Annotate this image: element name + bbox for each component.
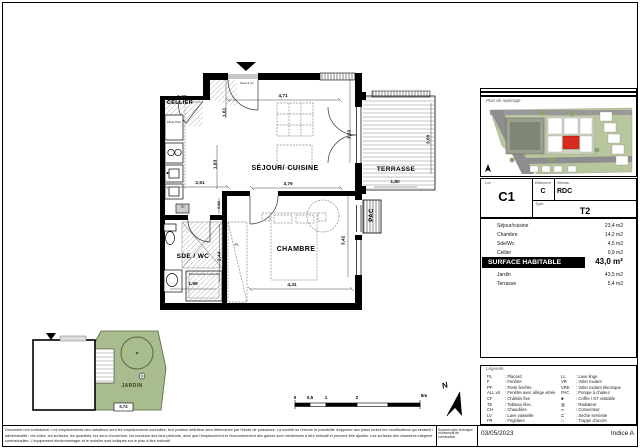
- north-arrow-icon: [447, 392, 462, 416]
- type-value: T2: [532, 207, 638, 216]
- footer-indice: Indice A: [560, 431, 634, 438]
- scale-tick-2: 2: [352, 396, 362, 401]
- legend-label: Frigidaire: [505, 419, 525, 423]
- legend-label: Lave linge: [576, 375, 597, 379]
- legend-label: Chaudière: [505, 408, 527, 412]
- room-label-pac: PAC: [369, 200, 375, 230]
- surface-row-area: 14,2 m2: [561, 233, 623, 238]
- site-plan-map: [482, 106, 635, 176]
- room-label-chambre: CHAMBRE: [268, 246, 324, 253]
- footer-note: Suivant notice technique et descriptif d…: [438, 429, 476, 439]
- footer-disclaimer-line3: contractuelles. L'équipement électroména…: [5, 439, 433, 443]
- legend-label: Sèche serviette: [576, 414, 607, 418]
- surface-row-name: Chambre: [497, 233, 518, 238]
- legend-label: Radiateur: [576, 403, 597, 407]
- dim-sde-h: 2,44: [219, 241, 224, 271]
- dim-chambre-w: 4,31: [280, 284, 304, 289]
- highlighted-unit: [563, 136, 579, 149]
- site-plan-title: Plan de repérage: [486, 99, 521, 104]
- legend-abbr: CF: [487, 397, 505, 401]
- legend-seche-serviette-icon: ⊏: [561, 414, 576, 418]
- legend-abbr: CH: [487, 408, 505, 412]
- scale-tick-1: 1: [321, 396, 331, 401]
- lot-table: Lot C1 Bâtiment C Niveau RDC Type T2: [480, 178, 637, 218]
- legend-abbr: PF: [487, 386, 505, 390]
- dim-terrasse-w: 1,80: [383, 181, 407, 186]
- room-label-cellier: CELLIER: [160, 101, 200, 107]
- scale-tick-05: 0,5: [303, 396, 317, 401]
- surface-habitable-label: SURFACE HABITABLE: [488, 260, 561, 267]
- legend-abbr: FR: [487, 419, 505, 423]
- footer-top-rule: [2, 425, 637, 426]
- room-label-sde-wc: SDE / WC: [168, 254, 218, 261]
- legend-abbr: LV: [487, 414, 505, 418]
- dim-cellier-w: 1,66: [170, 96, 194, 101]
- legend-label: Coffre / GT visitable: [576, 397, 615, 401]
- dim-sejour-window-h: 3,52: [349, 119, 354, 149]
- seuil-entree-label: Seuil 3 cm: [234, 82, 260, 85]
- site-plan-box: Plan de repérage: [480, 96, 637, 177]
- dim-chambre-h: 3,42: [343, 225, 348, 255]
- lot-value: C1: [481, 190, 532, 203]
- dim-couloir-h: 0,66: [217, 193, 221, 217]
- legend-abbr: PAC: [561, 391, 576, 395]
- legend-abbr: VR: [561, 380, 576, 384]
- pilote-pac-label: Pilote PAC: [164, 121, 184, 124]
- legend-label: Tableau élec.: [505, 403, 532, 407]
- legend-label: Fenêtre: [505, 380, 522, 384]
- legend-label: Volet roulant: [576, 380, 602, 384]
- ext-row-area: 5,4 m2: [561, 282, 623, 287]
- dim-entree-h: 1,61: [224, 97, 229, 127]
- dim-sejour-w: 3,76: [274, 183, 302, 188]
- scale-tick-5m: 5m: [416, 394, 432, 399]
- scale-bar: [295, 400, 420, 409]
- surface-row-name: Sde/Wc: [497, 242, 515, 247]
- niveau-label: Niveau: [557, 181, 569, 185]
- garden-mini-plan: [33, 331, 166, 411]
- dim-cuisine-h: 1,83: [215, 149, 220, 179]
- legend-label: Placard: [505, 375, 522, 379]
- surface-row-name: Séjour/cuisine: [497, 224, 528, 229]
- surface-row-area: 0,9 m2: [561, 251, 623, 256]
- footer-disclaimer-line2: administratifs : les côtes, les surfaces…: [5, 434, 433, 438]
- jardin-dim-label: 5,74: [114, 405, 133, 409]
- niveau-value: RDC: [557, 188, 587, 195]
- legend-left-column: PLPlacard FFenêtre PFPorte fenêtre ALL.v…: [487, 374, 559, 424]
- footer-date: 03/05/2023: [481, 431, 514, 438]
- legend-label: Porte fenêtre: [505, 386, 532, 390]
- doors: [179, 80, 356, 242]
- legend-label: Volet roulant électrique: [576, 386, 621, 390]
- scale-tick-0: 0: [290, 396, 300, 401]
- lot-label: Lot: [485, 181, 491, 185]
- legend-convecteur-icon: ═: [561, 408, 576, 412]
- type-label: Type: [535, 202, 544, 206]
- legend-coffre-icon: ■: [561, 397, 576, 401]
- legend-label: Lave vaisselle: [505, 414, 534, 418]
- pl-label: PL: [231, 243, 243, 247]
- legend-abbr: VRE: [561, 386, 576, 390]
- terrasse-deck: [358, 91, 435, 194]
- dim-terrasse-h: 3,00: [428, 124, 433, 154]
- dim-entree-w: 4,71: [271, 95, 295, 100]
- legend-abbr: LL: [561, 375, 576, 379]
- room-label-sejour: SÉJOUR/ CUISINE: [240, 165, 330, 172]
- legend-right-column: LLLave linge VRVolet roulant VREVolet ro…: [561, 374, 637, 424]
- legend-abbr: TE: [487, 403, 505, 407]
- legend-label: Convecteur: [576, 408, 600, 412]
- surface-habitable-bar: SURFACE HABITABLE: [482, 257, 585, 268]
- batiment-value: C: [532, 188, 554, 195]
- room-label-terrasse: TERRASSE: [370, 167, 422, 174]
- legend-abbr: ALL.vit: [487, 391, 505, 395]
- kitchen-fixtures: [165, 115, 189, 213]
- legend-trappe-icon: □: [561, 419, 576, 423]
- lot-table-divider-v2: [554, 179, 555, 200]
- ext-row-name: Terrasse: [497, 282, 516, 287]
- surface-row-area: 23,4 m2: [561, 224, 623, 229]
- legend-radiateur-icon: ▥: [561, 403, 576, 407]
- dim-sde-w: 1,99: [181, 283, 205, 288]
- footer-divider-1: [436, 425, 437, 446]
- legend-label: Châssis fixe: [505, 397, 530, 401]
- legend-label: Trappe d'accès: [576, 419, 607, 423]
- entrance-threshold: [228, 74, 258, 79]
- dim-cuisine-w: 2,61: [185, 182, 215, 187]
- top-window: [320, 73, 355, 80]
- footer-disclaimer-line1: Document non contractuel. Les emplacemen…: [5, 428, 433, 432]
- batiment-label: Bâtiment: [535, 181, 551, 185]
- legend-label: Fenêtre avec allège vitrée: [505, 391, 556, 395]
- legend-title: Légende: [486, 367, 504, 372]
- legend-abbr: PL: [487, 375, 505, 379]
- surface-row-area: 4,5 m2: [561, 242, 623, 247]
- legend-box: Légende PLPlacard FFenêtre PFPorte fenêt…: [480, 365, 637, 425]
- entrance-arrow-icon: [236, 62, 256, 71]
- legend-abbr: F: [487, 380, 505, 384]
- surface-row-name: Cellier: [497, 251, 511, 256]
- surface-habitable-value: 43,0 m²: [585, 258, 633, 266]
- seuil-douche-label: Seuil douche extra plat: [186, 273, 222, 276]
- ext-row-area: 43,5 m2: [561, 273, 623, 278]
- room-label-jardin: JARDIN: [114, 384, 150, 389]
- ext-row-name: Jardin: [497, 273, 511, 278]
- surfaces-box: Séjour/cuisine 23,4 m2 Chambre 14,2 m2 S…: [480, 218, 637, 358]
- legend-label: Pompe à chaleur: [576, 391, 610, 395]
- footer-divider-2: [477, 425, 478, 446]
- lot-table-divider-h1: [532, 200, 638, 201]
- plan-sheet: CELLIER SÉJOUR/ CUISINE CHAMBRE SDE / WC…: [0, 0, 640, 448]
- te-label: TE: [177, 206, 188, 210]
